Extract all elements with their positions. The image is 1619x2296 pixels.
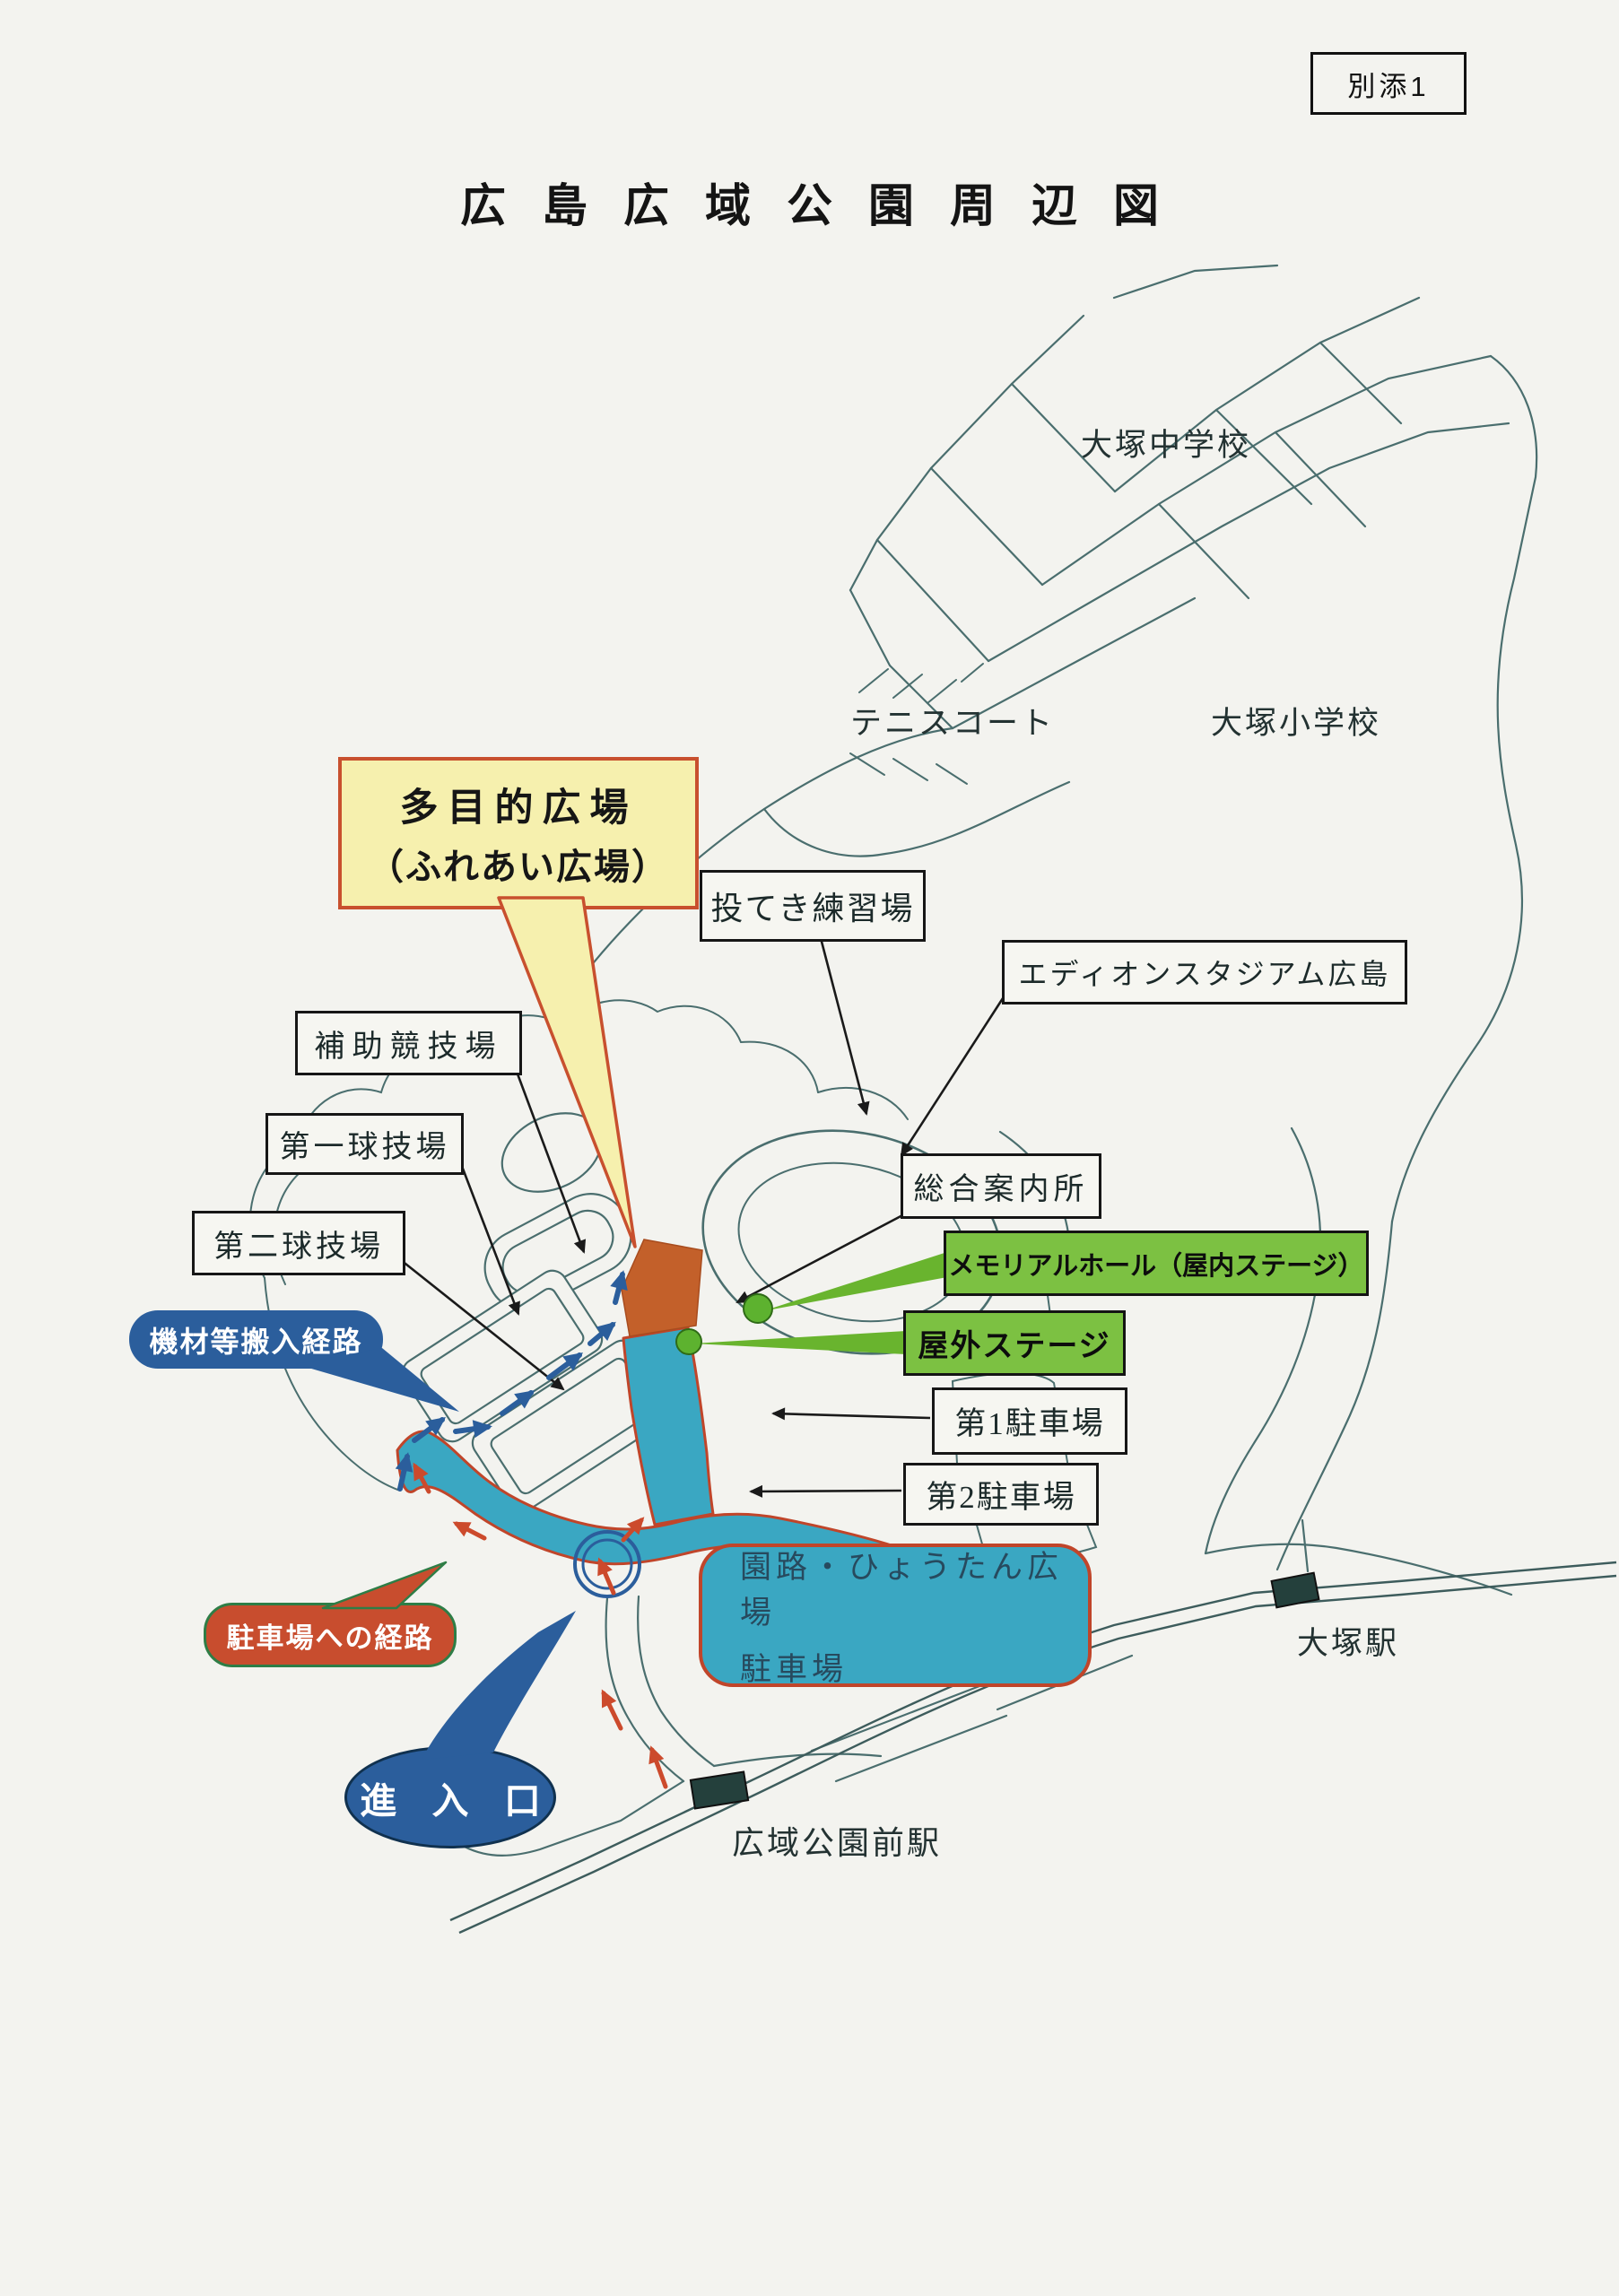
label-otsuka-junior-high: 大塚中学校 bbox=[1081, 420, 1251, 465]
box-parking-2: 第2駐車場 bbox=[903, 1463, 1099, 1526]
callout-parking-route: 駐車場への経路 bbox=[204, 1603, 457, 1667]
callout-equipment-route: 機材等搬入経路 bbox=[129, 1310, 383, 1369]
box-ball-field-1: 第一球技場 bbox=[265, 1113, 464, 1175]
callout-park-path-parking: 園路・ひょうたん広場 駐車場 bbox=[699, 1544, 1092, 1687]
label-koikikoenmae-station: 広域公園前駅 bbox=[732, 1817, 942, 1864]
outdoor-stage-dot-icon bbox=[676, 1329, 701, 1354]
box-throwing-practice: 投てき練習場 bbox=[700, 870, 926, 942]
label-otsuka-station: 大塚駅 bbox=[1297, 1618, 1399, 1664]
stage-label-outdoor-stage: 屋外ステージ bbox=[903, 1310, 1126, 1376]
park-path-parking-line1: 園路・ひょうたん広場 bbox=[740, 1542, 1088, 1633]
plaza-area-shape bbox=[622, 1239, 702, 1336]
park-path-parking-line2: 駐車場 bbox=[740, 1644, 1088, 1690]
box-ball-field-2: 第二球技場 bbox=[192, 1211, 405, 1275]
scanned-map-page: 別添1 広島広域公園周辺図 大塚中学校 テニスコート 大塚小学校 大塚駅 広域公… bbox=[0, 0, 1619, 2296]
label-otsuka-elementary: 大塚小学校 bbox=[1211, 698, 1381, 744]
box-edion-stadium: エディオンスタジアム広島 bbox=[1002, 940, 1407, 1004]
multipurpose-plaza-line1: 多目的広場 bbox=[400, 777, 638, 832]
memorial-hall-dot-icon bbox=[744, 1294, 772, 1323]
callout-entrance: 進 入 口 bbox=[344, 1746, 556, 1848]
page-title: 広島広域公園周辺図 bbox=[0, 169, 1619, 235]
label-tennis-court: テニスコート bbox=[850, 698, 1055, 744]
callout-multipurpose-plaza: 多目的広場 （ふれあい広場） bbox=[338, 757, 699, 909]
box-auxiliary-stadium: 補助競技場 bbox=[295, 1011, 522, 1075]
multipurpose-plaza-line2: （ふれあい広場） bbox=[368, 838, 669, 890]
attachment-tag: 別添1 bbox=[1310, 52, 1467, 115]
stage-label-memorial-hall: メモリアルホール（屋内ステージ） bbox=[944, 1231, 1369, 1296]
throwing-field-shape bbox=[490, 1098, 614, 1207]
map-linework bbox=[0, 0, 1619, 2296]
box-parking-1: 第1駐車場 bbox=[932, 1387, 1127, 1455]
box-information-center: 総合案内所 bbox=[901, 1153, 1101, 1219]
